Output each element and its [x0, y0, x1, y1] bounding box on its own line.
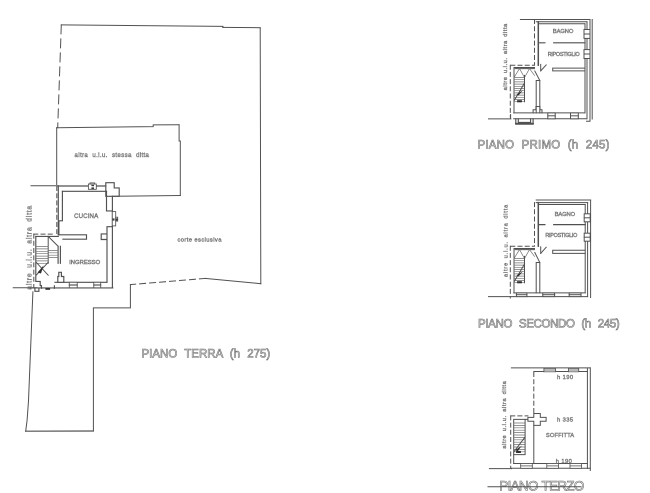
svg-text:RIPOSTIGLIO: RIPOSTIGLIO — [548, 52, 580, 58]
svg-text:altre u.i.u. altra ditta: altre u.i.u. altra ditta — [26, 205, 33, 290]
svg-text:BAGNO: BAGNO — [555, 212, 576, 218]
svg-text:INGRESSO: INGRESSO — [69, 260, 101, 266]
svg-text:PIANO TERZO: PIANO TERZO — [499, 479, 584, 493]
svg-text:RIPOSTIGLIO: RIPOSTIGLIO — [545, 233, 577, 239]
svg-text:altre u.i.u. altra ditta: altre u.i.u. altra ditta — [502, 380, 508, 448]
svg-text:h 190: h 190 — [557, 375, 574, 381]
svg-text:BAGNO: BAGNO — [553, 29, 574, 35]
svg-text:PIANO PRIMO (h 245): PIANO PRIMO (h 245) — [478, 139, 610, 151]
svg-text:SOFFITTA: SOFFITTA — [546, 433, 574, 439]
svg-text:h 190: h 190 — [556, 459, 573, 465]
svg-text:altre u.i.u. altra ditta: altre u.i.u. altra ditta — [503, 23, 509, 90]
svg-text:PIANO SECONDO (h 245): PIANO SECONDO (h 245) — [478, 319, 620, 331]
svg-text:corte esclusiva: corte esclusiva — [178, 237, 223, 243]
svg-text:PIANO TERRA (h 275): PIANO TERRA (h 275) — [142, 348, 271, 360]
svg-text:h 335: h 335 — [557, 417, 574, 423]
svg-text:altre u.i.u. altra ditta: altre u.i.u. altra ditta — [504, 204, 510, 277]
svg-text:altra u.i.u. stessa ditta: altra u.i.u. stessa ditta — [75, 152, 150, 159]
svg-text:CUCINA: CUCINA — [74, 213, 99, 220]
